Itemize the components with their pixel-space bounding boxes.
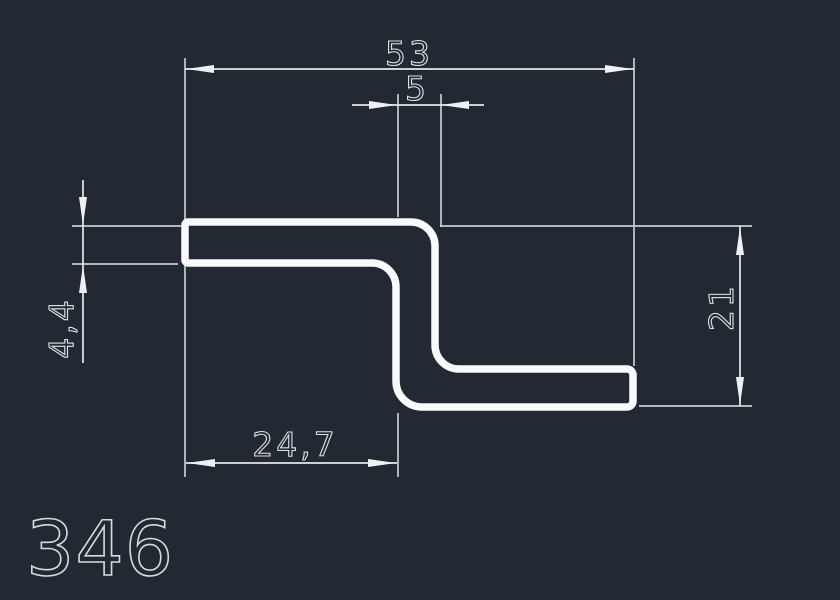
arrow-down-icon [736,377,744,405]
arrow-inward-right-icon [441,101,469,109]
dimension-value-24-7: 24,7 [252,425,337,464]
dimension-value-21: 21 [702,283,741,331]
profile-number: 346 [26,504,174,593]
arrow-inward-left-icon [369,101,397,109]
dimension-value-4-4: 4,4 [42,297,81,358]
arrow-right-icon [368,459,396,467]
arrow-left-icon [187,459,215,467]
profile-outline [185,222,633,407]
arrow-down-icon [79,197,87,225]
cad-drawing-canvas: 53 5 4,4 21 [0,0,840,600]
dimension-value-5: 5 [405,69,429,108]
dimension-value-53: 53 [385,34,433,73]
arrow-left-icon [186,65,214,73]
arrow-right-icon [605,65,633,73]
dimension-wall-thickness: 4,4 [42,180,181,363]
dimension-lower-flange-width: 24,7 [186,413,398,477]
dimension-bend-width: 5 [352,69,484,227]
arrow-up-icon [79,265,87,293]
technical-drawing: 53 5 4,4 21 [0,0,840,600]
dimension-overall-height: 21 [440,226,752,406]
arrow-up-icon [736,227,744,255]
